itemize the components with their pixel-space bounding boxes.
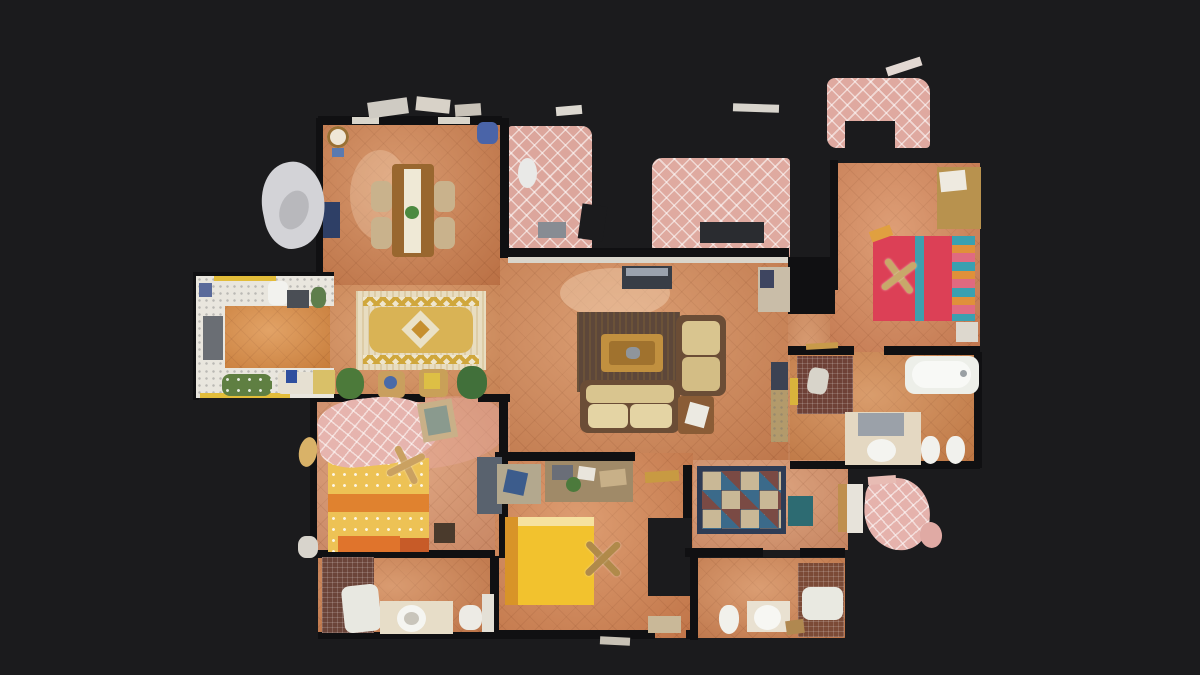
- shelf-items-corridor: [771, 390, 788, 442]
- wall-living-top: [505, 248, 789, 257]
- bench-dark: [434, 523, 455, 543]
- kitchen-stove: [287, 290, 309, 308]
- center-bed-pillow-edge: [518, 517, 594, 526]
- dining-door-mat: [323, 202, 340, 238]
- wall-center-bedroom-top: [495, 452, 635, 461]
- terrace-white-pot: [518, 158, 537, 188]
- scan-hole-center-bedroom: [648, 518, 692, 596]
- ceiling-fan-center: [577, 533, 629, 585]
- rug-yellow-zigzag-bottom: [363, 355, 479, 364]
- basket-right: [785, 619, 805, 635]
- sink-right: [754, 605, 781, 630]
- master-bedside-white: [956, 322, 978, 342]
- kitchen-floor: [225, 306, 330, 370]
- door-white-left: [482, 594, 494, 632]
- dresser-item-tan: [599, 469, 627, 488]
- left-bed-patch-1: [338, 536, 400, 552]
- window-sill-dining-2: [438, 117, 470, 124]
- artifact-white: [298, 536, 318, 558]
- clock-blue-deco: [332, 148, 344, 157]
- wall-center-bedroom-bottom: [495, 630, 655, 639]
- terrace-grey-mat: [538, 222, 566, 238]
- sofa-right-cushion-1: [682, 321, 720, 355]
- tub-right: [802, 587, 843, 620]
- leaning-mirror-glass: [424, 405, 451, 436]
- shelf-dark-corridor: [771, 362, 788, 390]
- blue-ceramic-jar: [477, 122, 498, 144]
- left-bed-orange-band: [328, 494, 429, 512]
- terrace-left-tiles: [508, 126, 592, 260]
- terrace-dark-patch: [700, 222, 764, 243]
- bathtub-drain: [960, 370, 967, 377]
- pink-scan-blob-hall-2: [918, 520, 944, 549]
- terrace-ledge-3: [885, 57, 922, 77]
- wall-master-left: [830, 160, 838, 290]
- dollhouse-viewer[interactable]: [0, 0, 1200, 675]
- kitchen-plant-deco: [311, 287, 326, 308]
- terrace-ledge-2: [733, 103, 779, 113]
- shower-left-tray: [341, 583, 383, 634]
- teal-door-mat: [788, 496, 813, 526]
- runner-centerpiece: [405, 206, 419, 219]
- kitchen-blue-bottle: [286, 370, 297, 383]
- kitchen-corner-cloth: [313, 370, 335, 394]
- master-bed-patch-band: [952, 236, 975, 321]
- hall-column-wood: [838, 484, 847, 532]
- dining-chair-nw: [371, 181, 392, 212]
- left-bed-patch-2: [400, 538, 429, 552]
- wall-left-bedroom-left: [310, 398, 317, 556]
- terrace-right-hole: [845, 121, 895, 148]
- dining-chair-se: [434, 217, 455, 249]
- center-bed-headboard: [505, 517, 518, 605]
- rug-yellow-zigzag-top: [363, 297, 479, 306]
- side-table-ceramics: [384, 376, 397, 389]
- hall-column-white: [847, 484, 863, 533]
- dresser-item-green: [566, 477, 581, 492]
- plant-pot-1: [336, 368, 364, 399]
- wall-right-bathroom-left: [690, 548, 698, 640]
- wall-center-bedroom-right: [683, 465, 692, 525]
- side-table-cloth: [424, 373, 440, 389]
- wall-dining-terrace: [500, 118, 509, 258]
- sofa-bottom-seat-1: [588, 404, 628, 428]
- dresser-item-white: [577, 466, 596, 481]
- terrace-mid-tiles: [652, 158, 790, 262]
- gold-tray: [645, 470, 680, 483]
- chair-white-left: [459, 605, 482, 630]
- bidet-main: [946, 436, 965, 464]
- dining-scrap-2: [415, 96, 450, 113]
- sink-left-ring: [404, 612, 419, 625]
- wall-hallway-bathroom-2: [800, 548, 845, 557]
- terrace-ledge-1: [556, 105, 583, 116]
- rug-ornate-field: [702, 471, 781, 529]
- coffee-table-deco: [626, 347, 640, 359]
- window-sill-living: [508, 257, 788, 263]
- window-sill-dining-1: [352, 117, 379, 124]
- door-scraps-bottom: [600, 636, 630, 646]
- vanity-sink: [867, 439, 896, 462]
- dining-chair-sw: [371, 217, 392, 249]
- terrace-left-hole: [578, 203, 608, 241]
- sofa-right-cushion-2: [682, 357, 720, 391]
- floorplan-canvas: [0, 0, 1200, 675]
- plant-pot-2: [457, 366, 487, 399]
- toilet-right: [719, 605, 739, 634]
- kitchen-sink: [268, 281, 288, 305]
- wall-hallway-bathroom-1: [685, 548, 763, 557]
- wall-living-right-block: [788, 257, 835, 314]
- dining-chair-ne: [434, 181, 455, 212]
- kitchen-blue-item: [199, 283, 212, 297]
- dining-scrap-3: [455, 103, 482, 117]
- wall-clock: [327, 126, 349, 148]
- wall-master-bottom-right: [884, 346, 980, 355]
- kitchen-appliance: [203, 316, 223, 360]
- vanity-mirror: [858, 413, 904, 436]
- living-cabinet-top: [626, 268, 668, 276]
- sofa-bottom-seat-2: [630, 404, 672, 428]
- toilet-main: [921, 436, 940, 464]
- wall-dining-top: [318, 116, 502, 125]
- kitchen-vegetables: [222, 374, 272, 396]
- towel-yellow: [790, 378, 798, 405]
- desk-corridor-item: [760, 270, 774, 288]
- master-wardrobe-papers: [939, 170, 967, 193]
- sofa-bottom-back: [586, 385, 674, 403]
- bench-center: [648, 616, 681, 633]
- kitchen-tile-trim-top: [214, 276, 276, 281]
